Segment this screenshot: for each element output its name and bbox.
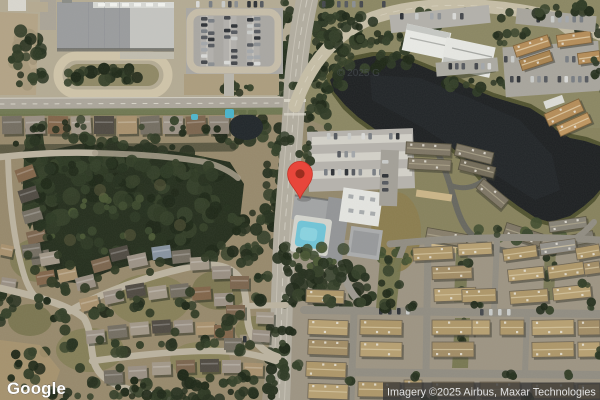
svg-text:Imagery ©2025 Airbus, Maxar Te: Imagery ©2025 Airbus, Maxar Technologies <box>387 387 596 399</box>
svg-text:Google: Google <box>7 379 66 398</box>
